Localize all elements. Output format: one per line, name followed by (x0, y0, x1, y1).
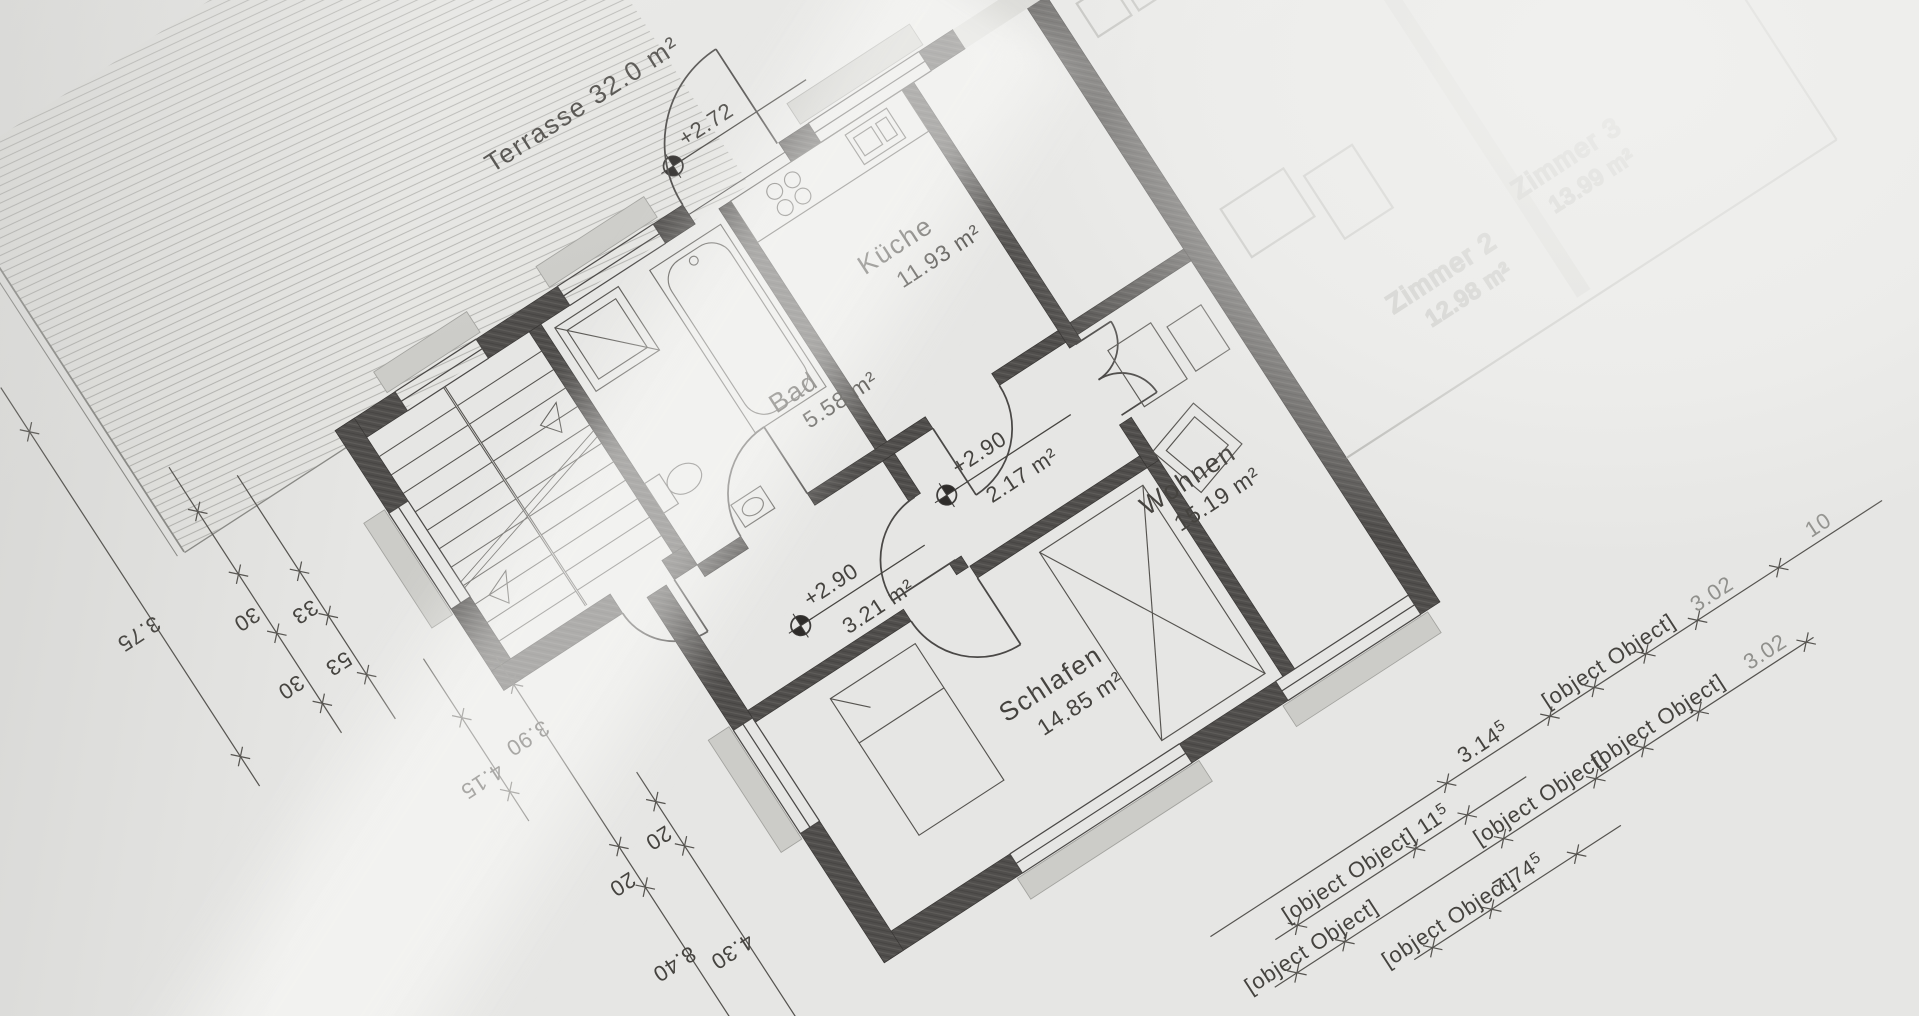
floor-plan-drawing: Terrasse 32.0 m² +2.72 (0, 0, 1919, 1016)
floor-plan-photo: Terrasse 32.0 m² +2.72 (0, 0, 1919, 1016)
